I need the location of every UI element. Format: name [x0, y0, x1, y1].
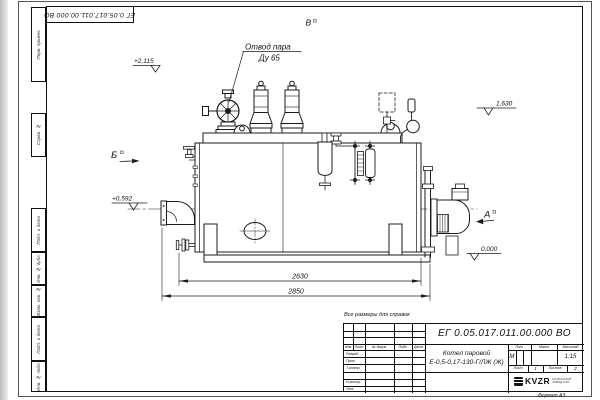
view-b-label: Б: [111, 150, 117, 161]
safety-valve-1: [250, 81, 272, 133]
title-block: Изм. Лист № докум. Подп. Дата Разраб. Пр…: [343, 323, 583, 392]
drawing-sheet: ЕГ 0.05.017.011.00.000 ВО Перв. примен. …: [0, 0, 600, 400]
boiler-body: [193, 133, 421, 252]
tb-header-docnum: № докум.: [365, 344, 394, 351]
kvzr-logo-subtext: КОТЕЛЬНЫЙ ЗАВОД РЭП: [552, 378, 571, 385]
kvzr-sub-line2: ЗАВОД РЭП: [552, 381, 571, 384]
tb-header-date: Дата: [412, 344, 425, 351]
tb-line: [412, 324, 413, 393]
tb-header-sign: Подп.: [394, 344, 412, 351]
tb-row-tkontr: Т.контр.: [344, 364, 367, 371]
tb-line: [394, 324, 395, 393]
steam-outlet-valve: [203, 90, 241, 133]
kvzr-logo-text: KVZR: [525, 376, 550, 386]
drain-valve: [176, 239, 195, 251]
tb-line: [523, 350, 524, 365]
view-v-label: В: [306, 18, 312, 28]
steam-outlet-dn: Ду 65: [258, 54, 280, 63]
tb-line: [344, 337, 425, 338]
view-marker-b: Б: [111, 150, 140, 163]
dim-2850-text: 2850: [287, 289, 304, 296]
tb-line: [344, 331, 425, 332]
elev-zero-text: 0,000: [481, 246, 498, 253]
elev-front-text: +0,592: [112, 196, 132, 203]
company-logo: KVZR КОТЕЛЬНЫЙ ЗАВОД РЭП: [514, 376, 571, 386]
tb-row-nkontr: Н.контр.: [344, 379, 367, 386]
dim-2630-text: 2630: [291, 274, 308, 281]
tb-row-utv: Утв.: [344, 386, 367, 393]
front-top-valve: [184, 147, 196, 161]
tb-sheets-value: 2: [567, 365, 584, 372]
tb-row-razrab: Разраб.: [344, 350, 367, 357]
view-a-label: А: [483, 210, 490, 221]
elevation-mark-zero: 0,000: [467, 246, 501, 260]
feed-elbow: [161, 201, 195, 225]
tb-mass-header: Масса: [531, 344, 557, 351]
tb-row-prov: Пров.: [344, 357, 367, 364]
elev-top-text: +2,115: [134, 58, 154, 65]
tb-lit-value: М: [508, 350, 516, 365]
tb-product-name: Котел паровой Е-0,5-0,17-130-Г/ЛЖ (Ж): [425, 344, 508, 372]
elevation-mark-right: 1,630: [477, 101, 516, 116]
tb-sheet-label: Лист: [508, 365, 528, 372]
tb-sheets-label: Листов: [543, 365, 567, 372]
elevation-mark-front: +0,592: [112, 196, 147, 211]
safety-valve-2: [281, 81, 303, 133]
steam-outlet-label: Отвод пара: [245, 43, 291, 52]
tb-scale-value: 1:15: [557, 350, 584, 365]
reference-note: Все размеры для справок: [344, 312, 410, 318]
tb-line: [344, 372, 584, 373]
kvzr-logo-icon: [514, 377, 523, 386]
format-note: Формат А3: [520, 393, 583, 399]
tb-product-line2: Е-0,5-0,17-130-Г/ЛЖ (Ж): [429, 358, 503, 367]
siphon-tube: [401, 99, 420, 143]
elev-right-text: 1,630: [496, 101, 513, 108]
tb-line: [516, 350, 517, 365]
elevation-mark-top: +2,115: [133, 58, 160, 72]
tb-sheet-value: 1: [528, 365, 543, 372]
view-marker-v: В: [306, 18, 317, 28]
tb-designation: ЕГ 0.05.017.011.00.000 ВО: [425, 324, 584, 344]
burner: [422, 167, 470, 258]
tb-product-line1: Котел паровой: [443, 349, 490, 358]
view-marker-a: А: [476, 210, 496, 225]
